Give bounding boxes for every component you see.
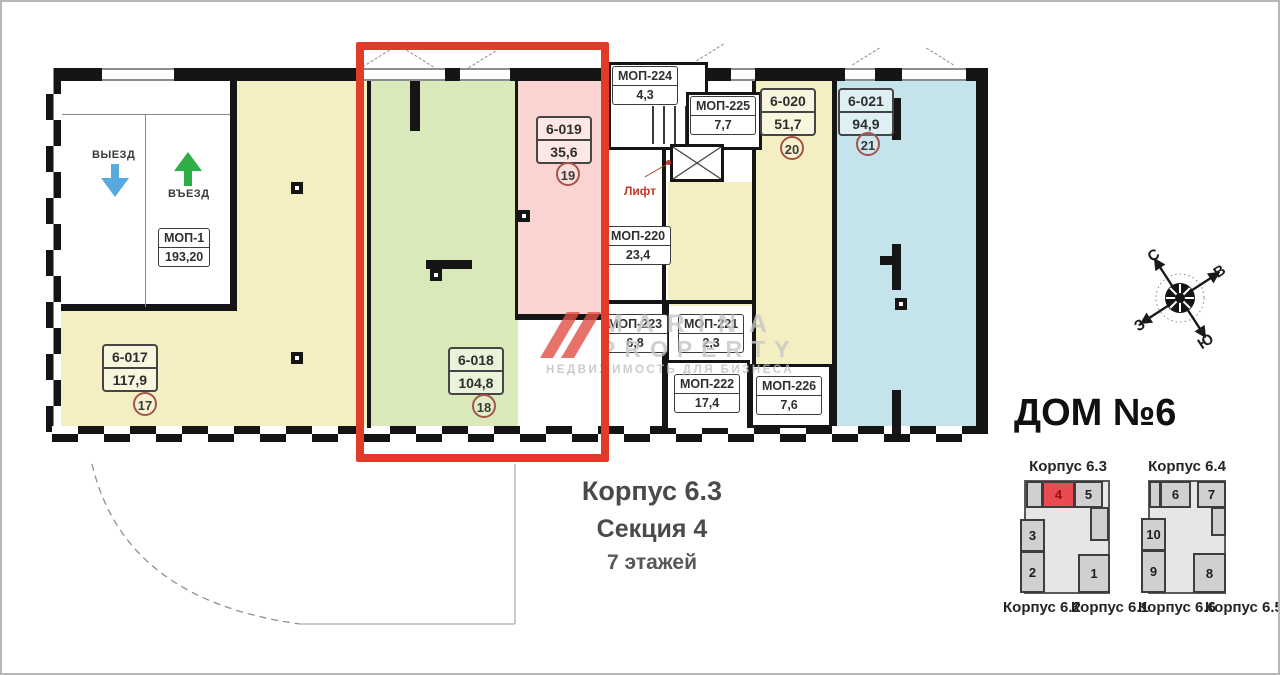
minimap-section-2: 2 (1020, 551, 1045, 593)
minimap-section-7: 7 (1197, 481, 1226, 508)
minimap-label-korpus-6-1: Корпус 6.1 (1071, 599, 1147, 616)
plan-caption: Корпус 6.3 Секция 4 7 этажей (542, 476, 762, 575)
unit-number-badge: 17 (133, 392, 157, 416)
unit-area: 51,7 (762, 113, 814, 134)
exit-arrow-icon (101, 164, 129, 198)
label-mop-1: МОП-1 193,20 (158, 228, 210, 267)
label-mop-225: МОП-225 7,7 (690, 96, 756, 135)
elevator-label: Лифт (624, 184, 656, 198)
elevator-leader-dot (666, 160, 671, 165)
room-6-017 (237, 81, 371, 428)
mop-name: МОП-224 (613, 67, 677, 86)
room-6-020-hall (668, 182, 752, 306)
mop-name: МОП-220 (606, 227, 670, 246)
window (845, 68, 875, 81)
unit-label-6-017: 6-017 117,9 (102, 344, 158, 392)
unit-id: 6-017 (104, 346, 156, 369)
exit-label: ВЫЕЗД (92, 149, 135, 161)
label-mop-220: МОП-220 23,4 (605, 226, 671, 265)
minimap-section-3: 3 (1020, 519, 1045, 552)
minimap-section-9: 9 (1141, 550, 1166, 593)
garage-lane-line (145, 115, 146, 307)
unit-label-6-021: 6-021 94,9 (838, 88, 894, 136)
wall-stub (892, 244, 901, 290)
unit-label-6-020: 6-020 51,7 (760, 88, 816, 136)
minimap-section-10: 10 (1141, 518, 1166, 551)
minimap-label-korpus-6-3: Корпус 6.3 (1024, 458, 1112, 475)
entrance-label: ВЪЕЗД (168, 188, 210, 200)
elevator-shaft (670, 144, 724, 182)
mop-area: 7,6 (757, 396, 821, 414)
outer-wall-left (46, 68, 61, 442)
wall-stub (880, 256, 892, 265)
label-mop-222: МОП-222 17,4 (674, 374, 740, 413)
minimap-label-korpus-6-6: Корпус 6.6 (1138, 599, 1214, 616)
mop-name: МОП-226 (757, 377, 821, 396)
mop-area: 23,4 (606, 246, 670, 264)
mop-area: 7,7 (691, 116, 755, 134)
minimap-section-4: 4 (1042, 481, 1075, 508)
label-mop-224: МОП-224 4,3 (612, 66, 678, 105)
window (102, 68, 174, 81)
mop-name: МОП-225 (691, 97, 755, 116)
unit-id: 6-020 (762, 90, 814, 113)
minimap-cell-filler (1211, 507, 1226, 536)
minimap-label-korpus-6-2: Корпус 6.2 (1003, 599, 1079, 616)
compass-south: Ю (1195, 330, 1217, 353)
caption-section: Секция 4 (542, 515, 762, 544)
outer-wall-right (976, 68, 988, 430)
label-mop-221: МОП-221 2,3 (678, 314, 744, 353)
column-marker (895, 298, 907, 310)
mop-area: 17,4 (675, 394, 739, 412)
minimap-section-6: 6 (1160, 481, 1191, 508)
mop-name: МОП-222 (675, 375, 739, 394)
minimap-label-korpus-6-4: Корпус 6.4 (1144, 458, 1230, 475)
mop-name: МОП-223 (603, 315, 667, 334)
entrance-arrow-icon (174, 152, 202, 186)
minimap-section-5: 5 (1074, 481, 1103, 508)
caption-floors: 7 этажей (542, 551, 762, 575)
floor-plan-image: ВЫЕЗД ВЪЕЗД МОП-1 193,20 6-017 117,9 17 … (0, 0, 1280, 675)
highlight-frame-selected-unit (356, 42, 609, 462)
mop-area: 193,20 (159, 248, 209, 266)
unit-area: 94,9 (840, 113, 892, 134)
wall-stub (892, 390, 901, 436)
compass-rose-icon: С В З Ю (1124, 242, 1236, 354)
garage-area (61, 81, 237, 311)
mop-name: МОП-221 (679, 315, 743, 334)
mop-area: 4,3 (613, 86, 677, 104)
minimap-label-korpus-6-5: Корпус 6.5 (1205, 599, 1280, 616)
label-mop-226: МОП-226 7,6 (756, 376, 822, 415)
column-marker (291, 182, 303, 194)
interior-wall (604, 300, 752, 304)
minimap-section-1: 1 (1078, 554, 1110, 593)
mop-area: 2,3 (679, 334, 743, 352)
window (731, 68, 755, 81)
unit-area: 117,9 (104, 369, 156, 390)
unit-number-badge: 21 (856, 132, 880, 156)
mop-name: МОП-1 (159, 229, 209, 248)
label-mop-223: МОП-223 6,8 (602, 314, 668, 353)
mop-area: 6,8 (603, 334, 667, 352)
unit-number-badge: 20 (780, 136, 804, 160)
window (902, 68, 966, 81)
column-marker (291, 352, 303, 364)
house-title: ДОМ №6 (1014, 392, 1194, 435)
unit-id: 6-021 (840, 90, 892, 113)
minimap-section-8: 8 (1193, 553, 1226, 593)
minimap-cell-filler (1026, 481, 1043, 508)
garage-gate-line (62, 114, 230, 115)
minimap-cell-filler (1090, 507, 1109, 541)
caption-building: Корпус 6.3 (542, 476, 762, 507)
